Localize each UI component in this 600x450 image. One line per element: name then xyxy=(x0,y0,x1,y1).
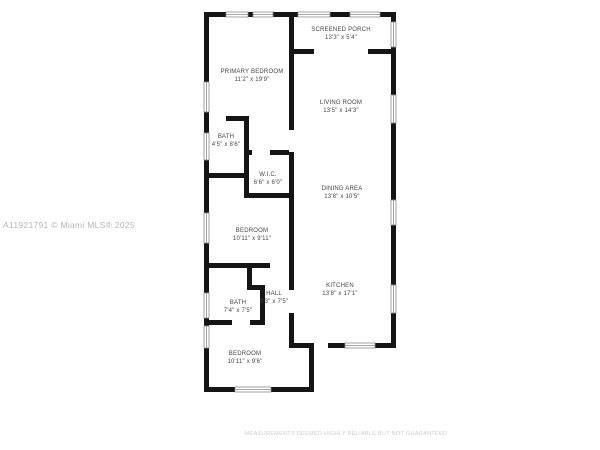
room-name: HALL xyxy=(260,291,288,299)
wall-bedroom-jut-right xyxy=(309,345,314,392)
mls-watermark: A11921791 © Miami MLS® 2025 xyxy=(3,220,135,230)
room-dimensions: 4'5" x 8'6" xyxy=(212,142,240,150)
window xyxy=(350,12,380,17)
window xyxy=(253,12,273,17)
interior-walls xyxy=(204,12,391,348)
window xyxy=(391,200,396,225)
window xyxy=(204,293,209,318)
wall-wic-bottom xyxy=(244,193,294,198)
room-label-hall: HALL 3'3" x 7'5" xyxy=(260,291,288,306)
room-label-living-room: LIVING ROOM 13'5" x 14'3" xyxy=(320,100,362,115)
room-label-primary-bedroom: PRIMARY BEDROOM 11'2" x 19'9" xyxy=(221,69,284,84)
room-label-screened-porch: SCREENED PORCH 13'3" x 5'4" xyxy=(311,27,370,42)
window xyxy=(345,343,375,348)
wall-bedroom2-bottom xyxy=(204,263,270,268)
room-label-dining-area: DINING AREA 13'8" x 10'5" xyxy=(322,186,363,201)
window xyxy=(204,133,209,160)
room-name: LIVING ROOM xyxy=(320,100,362,108)
room-name: PRIMARY BEDROOM xyxy=(221,69,284,77)
room-name: BEDROOM xyxy=(227,351,262,359)
room-dimensions: 6'6" x 6'0" xyxy=(254,180,282,188)
room-label-bedroom-2: BEDROOM 10'11" x 9'11" xyxy=(233,228,271,243)
room-dimensions: 3'3" x 7'5" xyxy=(260,299,288,307)
room-dimensions: 13'8" x 10'5" xyxy=(322,194,363,202)
wall-wic-top-a xyxy=(244,150,252,155)
room-name: BATH xyxy=(224,300,252,308)
wall-porch-divider-left xyxy=(294,49,314,54)
room-name: BATH xyxy=(212,134,240,142)
room-label-kitchen: KITCHEN 13'8" x 17'1" xyxy=(322,283,358,298)
window xyxy=(204,326,209,348)
room-dimensions: 7'4" x 7'5" xyxy=(224,308,252,316)
room-dimensions: 13'8" x 17'1" xyxy=(322,291,358,299)
room-dimensions: 10'11" x 9'11" xyxy=(233,236,271,244)
room-dimensions: 13'5" x 14'3" xyxy=(320,108,362,116)
room-dimensions: 11'2" x 19'9" xyxy=(221,77,284,85)
wall-bath2-bottom-a xyxy=(204,320,232,325)
room-name: BEDROOM xyxy=(233,228,271,236)
room-name: KITCHEN xyxy=(322,283,358,291)
room-label-bedroom-3: BEDROOM 10'11" x 9'6" xyxy=(227,351,262,366)
wall-wic-top-b xyxy=(270,150,289,155)
room-label-primary-bath: BATH 4'5" x 8'6" xyxy=(212,134,240,149)
wall-center-lower xyxy=(289,313,294,348)
window xyxy=(391,95,396,123)
window xyxy=(204,82,209,112)
wall-bath1-bottom xyxy=(204,173,249,178)
wall-bath1-right xyxy=(244,116,249,198)
wall-bath2-bottom-b xyxy=(250,320,265,325)
measurement-disclaimer: MEASUREMENTS DEEMED HIGHLY RELIABLE BUT … xyxy=(245,431,447,437)
room-label-wic: W.I.C. 6'6" x 6'0" xyxy=(254,172,282,187)
room-name: SCREENED PORCH xyxy=(311,27,370,35)
floor-plan-page: SCREENED PORCH 13'3" x 5'4" PRIMARY BEDR… xyxy=(0,0,600,450)
room-name: W.I.C. xyxy=(254,172,282,180)
room-label-bath-2: BATH 7'4" x 7'5" xyxy=(224,300,252,315)
room-dimensions: 13'3" x 5'4" xyxy=(311,35,370,43)
room-dimensions: 10'11" x 9'6" xyxy=(227,359,262,367)
window xyxy=(235,387,271,392)
wall-center-upper xyxy=(289,12,294,130)
window xyxy=(204,213,209,243)
window xyxy=(391,22,396,47)
room-name: DINING AREA xyxy=(322,186,363,194)
wall-center-middle xyxy=(289,152,294,290)
window xyxy=(298,12,330,17)
wall-porch-divider-right xyxy=(368,49,391,54)
window xyxy=(391,285,396,313)
window xyxy=(226,12,248,17)
